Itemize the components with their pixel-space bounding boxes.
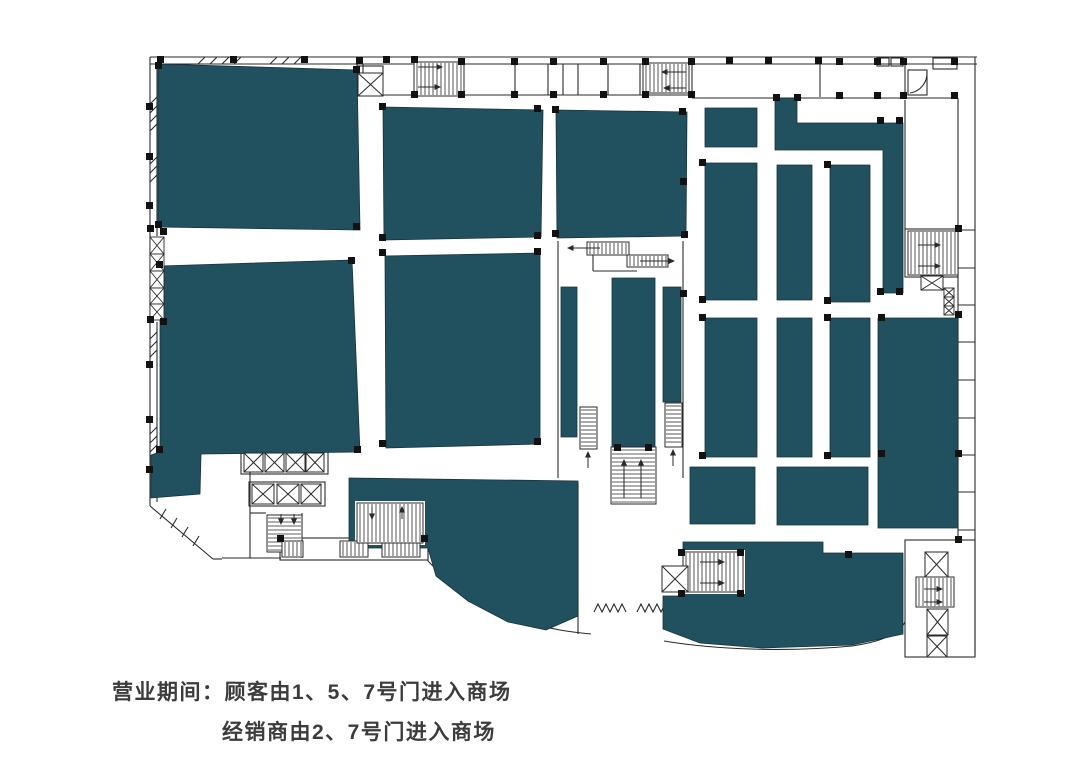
structural-column [680, 178, 687, 185]
structural-column [951, 92, 958, 99]
stairs-symbol [611, 447, 656, 504]
structural-column [301, 56, 308, 63]
structural-column [699, 452, 706, 459]
structural-column [379, 440, 386, 447]
note-line-2: 经销商由2、7号门进入商场 [222, 716, 496, 746]
structural-column [678, 549, 685, 556]
elevator-symbol [277, 484, 299, 504]
structural-column [552, 106, 559, 113]
elevator-symbol [662, 566, 688, 592]
store-area-block [556, 110, 687, 238]
wall-line [198, 57, 205, 64]
wall-line [210, 57, 217, 64]
structural-column [230, 56, 237, 63]
door-leaf-symbol [150, 237, 164, 254]
structural-column [146, 202, 153, 209]
structural-column [353, 223, 360, 230]
elevator-symbol [927, 609, 948, 635]
structural-column [379, 234, 386, 241]
store-area-block [561, 287, 577, 437]
wall-line [270, 57, 277, 64]
structural-column [737, 549, 744, 556]
store-area-block [777, 467, 868, 525]
structural-column [458, 91, 465, 98]
structural-column [874, 58, 881, 65]
door-leaf-symbol [150, 288, 164, 304]
store-area-block [385, 253, 540, 448]
structural-column [678, 590, 685, 597]
structural-column [277, 535, 284, 542]
structural-column [642, 58, 649, 65]
structural-column [600, 91, 607, 98]
wall-line [150, 350, 157, 357]
elevator-symbol [286, 453, 305, 472]
structural-column [146, 361, 153, 368]
store-area-block [383, 107, 543, 240]
wall-line [150, 506, 213, 559]
structural-column [824, 297, 831, 304]
structural-column [794, 94, 801, 101]
wall-line [294, 57, 301, 64]
wall-rect [908, 70, 927, 95]
elevator-symbol [358, 73, 383, 96]
structural-column [824, 314, 831, 321]
structural-column [534, 105, 541, 112]
structural-column [147, 316, 154, 323]
structural-column [411, 56, 418, 63]
note-line-1: 营业期间：顾客由1、5、7号门进入商场 [112, 676, 512, 706]
structural-column [642, 91, 649, 98]
structural-column [552, 230, 559, 237]
structural-column [383, 56, 390, 63]
elevator-symbol [301, 484, 321, 504]
structural-column [699, 159, 706, 166]
structural-column [836, 92, 843, 99]
wall-line [150, 427, 157, 434]
structural-column [534, 248, 541, 255]
structural-column [896, 288, 903, 295]
floor-plan-canvas [0, 0, 1080, 763]
wall-line [150, 124, 157, 131]
structural-column [955, 450, 962, 457]
mall-floor-plan: 营业期间：顾客由1、5、7号门进入商场 经销商由2、7号门进入商场 [0, 0, 1080, 763]
elevator-symbol [252, 484, 274, 504]
structural-column [877, 117, 884, 124]
structural-column [550, 91, 557, 98]
wall-line [150, 115, 157, 122]
store-area-block [830, 318, 870, 457]
structural-column [146, 416, 153, 423]
structural-column [688, 91, 695, 98]
structural-column [773, 94, 780, 101]
structural-column [421, 535, 428, 542]
structural-column [534, 232, 541, 239]
store-area-block [705, 108, 757, 147]
structural-column [699, 314, 706, 321]
structural-column [955, 536, 962, 543]
stairs-box [357, 503, 423, 543]
structural-column [824, 452, 831, 459]
structural-column [878, 314, 885, 321]
store-area-block [705, 163, 757, 300]
structural-column [955, 225, 962, 232]
wall-line [150, 166, 157, 173]
structural-column [146, 103, 153, 110]
elevator-symbol [921, 276, 943, 290]
structural-column [680, 290, 687, 297]
door-leaf-symbol [944, 297, 954, 306]
wall-line [282, 57, 289, 64]
structural-column [951, 58, 958, 65]
stairs-symbol [282, 541, 303, 557]
stairs-symbol [665, 403, 682, 447]
store-area-block [663, 287, 681, 402]
structural-column [699, 296, 706, 303]
structural-column [534, 438, 541, 445]
structural-column [160, 318, 167, 325]
structural-column [878, 450, 885, 457]
wall-line [150, 175, 157, 182]
structural-column [379, 103, 386, 110]
wall-path [910, 72, 927, 93]
wall-line [222, 57, 229, 64]
stairs-symbol [580, 407, 597, 449]
stairs-symbol [908, 231, 958, 275]
store-area-block [777, 165, 812, 300]
elevator-symbol [306, 453, 324, 472]
structural-column [146, 153, 153, 160]
structural-column [688, 58, 695, 65]
structural-column [824, 161, 831, 168]
structural-column [765, 57, 772, 64]
store-area-block [878, 318, 958, 528]
structural-column [900, 92, 907, 99]
structural-column [900, 58, 907, 65]
structural-column [155, 62, 162, 69]
door-leaf-symbol [150, 271, 164, 288]
structural-column [550, 58, 557, 65]
store-area-block [830, 165, 870, 302]
store-area-block [158, 64, 360, 230]
structural-column [458, 58, 465, 65]
wall-line [150, 436, 157, 443]
stairs-box [908, 231, 958, 275]
structural-column [614, 444, 621, 451]
wall-path [594, 604, 669, 612]
elevator-symbol [927, 636, 947, 657]
stairs-symbol [683, 552, 743, 592]
structural-column [600, 58, 607, 65]
structural-column [147, 225, 154, 232]
store-area-block [777, 318, 812, 457]
structural-column [815, 57, 822, 64]
merchandise-blocks [151, 64, 958, 648]
structural-column [511, 91, 518, 98]
structural-column [379, 249, 386, 256]
structural-column [354, 446, 361, 453]
structural-column [146, 466, 153, 473]
structural-column [356, 57, 363, 64]
structural-column [836, 58, 843, 65]
structural-column [726, 57, 733, 64]
structural-column [737, 590, 744, 597]
structural-column [874, 92, 881, 99]
structural-column [156, 261, 163, 268]
structural-column [681, 231, 688, 238]
structural-column [877, 288, 884, 295]
structural-column [155, 221, 162, 228]
stairs-box [611, 447, 656, 504]
door-leaf-symbol [944, 306, 954, 315]
elevator-symbol [925, 552, 948, 577]
structural-column [511, 58, 518, 65]
store-area-block [705, 318, 757, 457]
structural-column [645, 444, 652, 451]
structural-column [845, 551, 852, 558]
structural-column [896, 117, 903, 124]
structural-column [679, 108, 686, 115]
structural-column [160, 228, 167, 235]
store-area-block [690, 467, 755, 524]
structural-column [348, 257, 355, 264]
elevator-symbol [244, 453, 263, 472]
structural-column [353, 66, 360, 73]
store-area-block [612, 278, 655, 447]
structural-column [156, 446, 163, 453]
structural-column [955, 311, 962, 318]
stairs-symbol [357, 503, 423, 543]
door-leaf-symbol [944, 288, 954, 297]
structural-column [157, 56, 164, 63]
wall-line [150, 97, 157, 104]
wall-line [150, 332, 157, 339]
wall-line [150, 445, 157, 452]
stairs-box [580, 407, 597, 449]
elevator-symbol [265, 453, 284, 472]
structural-column [411, 91, 418, 98]
wall-line [150, 341, 157, 348]
